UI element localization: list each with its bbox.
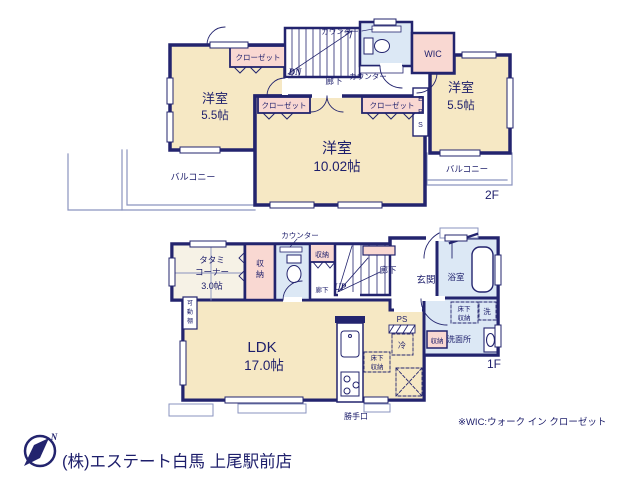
1f-hallway-label: 廊下 xyxy=(379,265,397,275)
floor-2f: 洋室 5.5帖 洋室 5.5帖 洋室 10.02帖 クローゼット クローゼット … xyxy=(68,19,513,210)
1f-ldk xyxy=(183,300,424,400)
compass-icon: N xyxy=(24,432,58,466)
2f-room-main-size: 10.02帖 xyxy=(313,159,360,174)
1f-washroom-label: 洗面所 xyxy=(447,334,471,344)
2f-room-east-label: 洋室 xyxy=(448,80,474,95)
1f-underfloor1b: 収納 xyxy=(458,313,471,322)
1f-backdoor-step xyxy=(364,404,390,412)
2f-balcony-east-label: バルコニー xyxy=(446,164,488,174)
1f-backdoor-label: 勝手口 xyxy=(344,411,368,421)
wic-note: ※WIC:ウォーク イン クローゼット xyxy=(458,416,606,428)
2f-balcony-west-label: バルコニー xyxy=(171,172,216,182)
1f-counter-label: カウンター xyxy=(281,231,319,240)
2f-balcony-west xyxy=(68,150,255,210)
1f-underfloor1a: 床下 xyxy=(458,304,472,313)
2f-dn-label: DN xyxy=(288,67,302,77)
1f-kitchen-wall-stub xyxy=(335,316,365,323)
2f-eps-label: EPS xyxy=(418,96,423,129)
2f-room-west-label: 洋室 xyxy=(202,91,228,106)
2f-hallway-label: 廊下 xyxy=(325,76,343,86)
1f-underfloor2b: 収納 xyxy=(371,362,384,371)
floorplan-page: 洋室 5.5帖 洋室 5.5帖 洋室 10.02帖 クローゼット クローゼット … xyxy=(0,0,640,480)
2f-counter-mid-label: カウンター xyxy=(349,72,387,81)
1f-tatami-size: 3.0帖 xyxy=(201,280,223,291)
1f-fridge-label: 冷 xyxy=(398,340,406,350)
1f-up-label: UP xyxy=(334,282,346,292)
compass-north-label: N xyxy=(50,432,58,442)
1f-terrace-step-west xyxy=(169,404,213,416)
1f-hallway-stair-label: 廊下 xyxy=(316,285,330,294)
1f-washroom-storage-label: 収納 xyxy=(431,336,444,345)
2f-counter-top-label: カウンター xyxy=(321,27,359,36)
1f-washer-label: 洗 xyxy=(483,306,491,316)
1f-shoe-cabinet xyxy=(363,246,395,255)
1f-ldk-size: 17.0帖 xyxy=(244,358,284,373)
1f-bathtub xyxy=(472,247,493,292)
2f-closet-west-label: クローゼット xyxy=(236,52,281,62)
1f-underfloor2a: 床下 xyxy=(371,353,385,362)
2f-room-east-size: 5.5帖 xyxy=(447,98,475,112)
1f-terrace-step xyxy=(238,404,306,413)
floor-1f: タタミ コーナー 3.0帖 収納 カウンター 収納 廊下 UP 廊下 玄関 浴室… xyxy=(169,228,501,421)
1f-bath-label: 浴室 xyxy=(447,272,465,282)
2f-wic-label: WIC xyxy=(424,49,442,59)
1f-storage-stair-label: 収納 xyxy=(315,250,329,259)
2f-closet-main-left-label: クローゼット xyxy=(262,100,307,110)
2f-room-west-size: 5.5帖 xyxy=(201,108,229,122)
1f-tatami-label1: タタミ xyxy=(199,255,225,265)
2f-room-main-label: 洋室 xyxy=(322,140,352,157)
footer: N (株)エステート白馬 上尾駅前店 ※WIC:ウォーク イン クローゼット xyxy=(24,416,606,471)
2f-closet-main-right-label: クローゼット xyxy=(370,100,415,110)
1f-entrance-label: 玄関 xyxy=(416,274,435,286)
floorplan-drawing: 洋室 5.5帖 洋室 5.5帖 洋室 10.02帖 クローゼット クローゼット … xyxy=(0,0,640,480)
1f-ps-hatch xyxy=(389,325,415,333)
2f-floor-label: 2F xyxy=(485,188,499,202)
1f-ldk-label: LDK xyxy=(247,339,276,356)
1f-ps-label: PS xyxy=(397,315,408,324)
company-name: (株)エステート白馬 上尾駅前店 xyxy=(62,452,292,471)
1f-floor-label: 1F xyxy=(487,357,501,371)
1f-tatami-label2: コーナー xyxy=(195,267,229,277)
1f-movable-shelf-label: 可動棚 xyxy=(187,300,193,325)
